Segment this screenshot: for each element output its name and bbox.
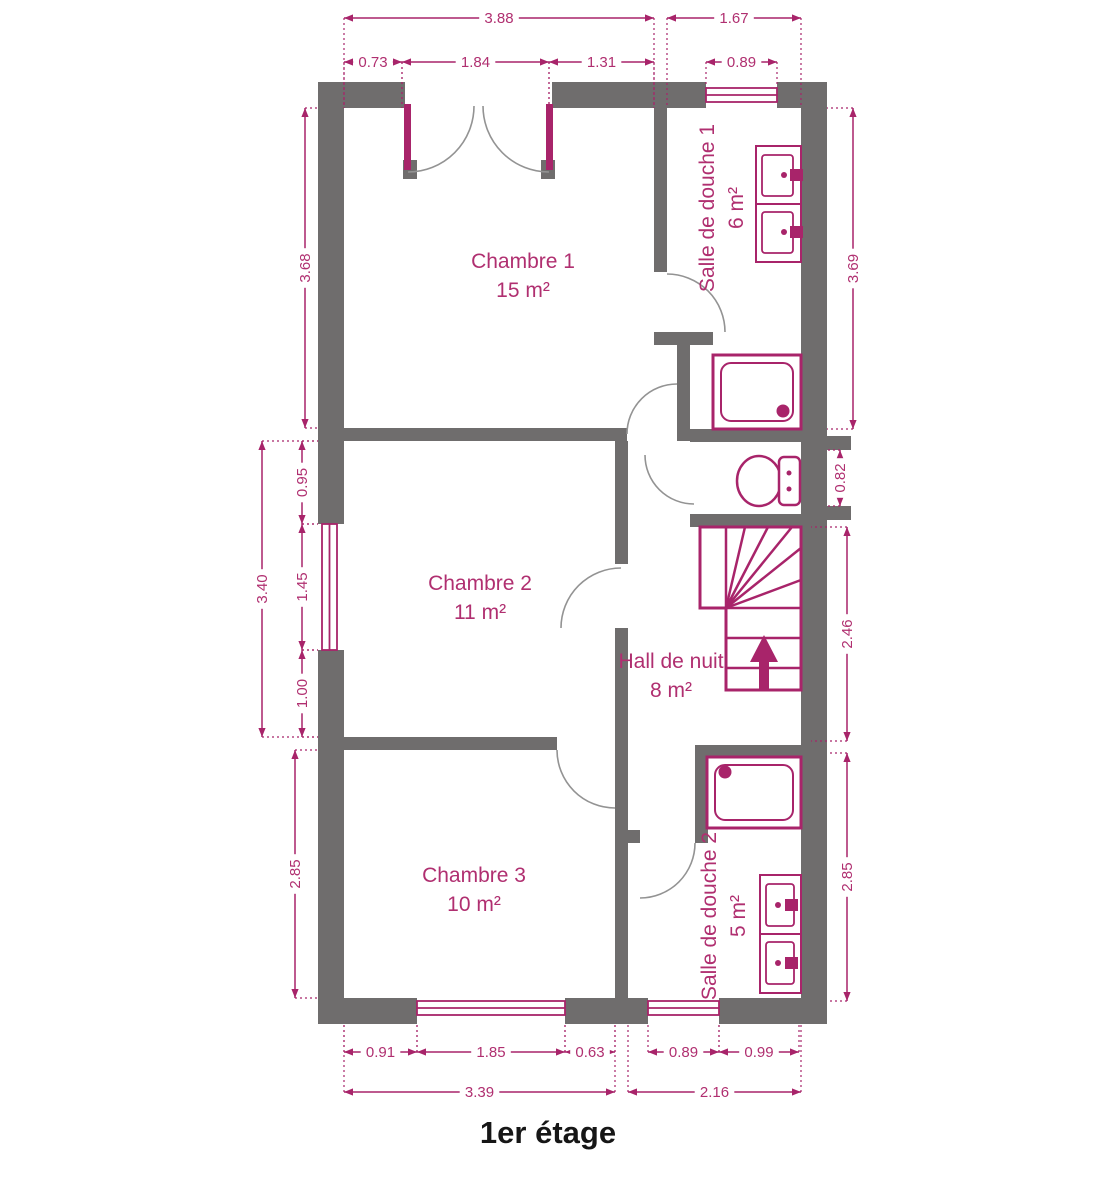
window-chambre2-icon xyxy=(322,524,337,650)
room-name: Salle de douche 1 xyxy=(696,124,719,292)
room-area: 11 m² xyxy=(454,601,506,624)
dimension-value: 0.89 xyxy=(669,1044,698,1061)
dimension-0.99: 0.99 xyxy=(719,1024,799,1061)
dimension-value: 1.85 xyxy=(476,1044,505,1061)
wall-sdd1-jog xyxy=(654,332,713,345)
wall-chambre2-east-upper xyxy=(615,441,628,564)
french-door-swing-left-icon xyxy=(408,106,474,172)
dimension-2.85: 2.85 xyxy=(827,753,856,1001)
toilet-icon xyxy=(737,456,800,506)
room-area: 5 m² xyxy=(727,895,750,937)
dimension-2.16: 2.16 xyxy=(628,1024,801,1101)
wall-chambre1-south xyxy=(344,428,627,441)
floor-plan-page: Chambre 115 m²Salle de douche 16 m²Chamb… xyxy=(0,0,1113,1200)
dimension-value: 2.46 xyxy=(839,619,856,648)
dimension-value: 0.63 xyxy=(575,1044,604,1061)
room-name: Hall de nuit xyxy=(618,650,723,673)
dimension-value: 1.67 xyxy=(719,10,748,27)
wall-sdd2-shower-north xyxy=(695,745,801,757)
dimension-0.91: 0.91 xyxy=(344,1024,417,1061)
wall-chambre1-east xyxy=(654,108,667,272)
french-door-swing-right-icon xyxy=(483,106,549,172)
wall-hall-west-stub xyxy=(677,345,690,441)
dimension-value: 2.16 xyxy=(700,1084,729,1101)
room-label-1: Chambre 115 m² xyxy=(471,250,575,302)
dimension-value: 2.85 xyxy=(287,859,304,888)
room-name: Salle de douche 2 xyxy=(698,832,721,1000)
dimension-value: 0.82 xyxy=(832,463,849,492)
dimension-value: 3.69 xyxy=(845,254,862,283)
dimension-3.68: 3.68 xyxy=(296,108,319,428)
dimension-2.85: 2.85 xyxy=(286,750,318,998)
wall-wc-south xyxy=(690,514,801,527)
room-label-4: Hall de nuit8 m² xyxy=(618,650,723,702)
dimension-value: 0.91 xyxy=(366,1044,395,1061)
dimension-value: 1.00 xyxy=(294,679,311,708)
door-swing-sdd2-icon xyxy=(640,843,695,898)
wall-chambre2-east-lower xyxy=(615,628,628,998)
dimension-value: 1.45 xyxy=(294,572,311,601)
wall-duct-pilaster-bottom xyxy=(827,506,851,520)
dimension-1.00: 1.00 xyxy=(293,650,318,737)
dimension-value: 0.95 xyxy=(294,468,311,497)
room-label-6: Salle de douche 25 m² xyxy=(698,832,750,1000)
dimension-value: 0.99 xyxy=(744,1044,773,1061)
dimension-value: 2.85 xyxy=(839,862,856,891)
room-name: Chambre 3 xyxy=(422,864,526,887)
door-swing-wc-icon xyxy=(645,455,694,504)
wall-chambre3-north xyxy=(344,737,557,750)
double-washbasin-1-icon xyxy=(756,146,803,262)
dimension-1.45: 1.45 xyxy=(293,524,318,650)
room-name: Chambre 1 xyxy=(471,250,575,273)
room-label-5: Chambre 310 m² xyxy=(422,864,526,916)
wall-top-right xyxy=(777,82,827,108)
shower-tray-1-icon xyxy=(713,355,801,429)
dimension-value: 3.68 xyxy=(297,253,314,282)
dimension-1.84: 1.84 xyxy=(402,53,549,108)
door-swing-chambre3-icon xyxy=(557,750,615,808)
dimension-0.89: 0.89 xyxy=(706,53,777,88)
dimension-value: 3.39 xyxy=(465,1084,494,1101)
window-sdd2-icon xyxy=(648,1001,719,1015)
room-area: 10 m² xyxy=(447,893,501,916)
dimension-0.89: 0.89 xyxy=(648,1024,719,1061)
window-chambre3-icon xyxy=(417,1001,565,1015)
room-label-2: Salle de douche 16 m² xyxy=(696,124,748,292)
dimension-value: 3.40 xyxy=(254,574,271,603)
dimension-1.85: 1.85 xyxy=(417,1024,565,1061)
wall-sdd2-door-stub xyxy=(628,830,640,843)
dimension-value: 0.89 xyxy=(727,54,756,71)
dimension-value: 3.88 xyxy=(484,10,513,27)
door-swing-chambre1-icon xyxy=(627,384,677,434)
window-sdd1-icon xyxy=(706,88,777,102)
dimension-0.63: 0.63 xyxy=(565,1024,615,1061)
dimension-value: 1.31 xyxy=(587,54,616,71)
room-area: 6 m² xyxy=(725,187,748,229)
doors xyxy=(404,104,725,898)
wall-duct-pilaster-top xyxy=(827,436,851,450)
dimension-3.39: 3.39 xyxy=(344,1024,615,1101)
wall-bottom-middle xyxy=(565,998,648,1024)
room-label-3: Chambre 211 m² xyxy=(428,572,532,624)
door-swing-chambre2-icon xyxy=(561,568,621,628)
dimension-3.69: 3.69 xyxy=(827,108,862,429)
dimension-value: 1.84 xyxy=(461,54,490,71)
staircase-up-arrow-icon xyxy=(750,635,778,690)
room-name: Chambre 2 xyxy=(428,572,532,595)
shower-tray-2-icon xyxy=(707,757,801,828)
wall-top-left xyxy=(318,82,405,108)
dimension-0.95: 0.95 xyxy=(293,441,318,524)
floor-plan: Chambre 115 m²Salle de douche 16 m²Chamb… xyxy=(0,0,1113,1200)
wall-bottom-right xyxy=(719,998,827,1024)
wall-right xyxy=(801,108,827,998)
wall-bottom-left xyxy=(318,998,417,1024)
wall-left-lower xyxy=(318,650,344,1024)
dimension-value: 0.73 xyxy=(358,54,387,71)
double-washbasin-2-icon xyxy=(760,875,801,993)
french-door-leaf-right xyxy=(546,104,553,170)
french-door-leaf-left xyxy=(404,104,411,170)
plan-title: 1er étage xyxy=(480,1115,616,1150)
dimension-0.82: 0.82 xyxy=(827,450,849,506)
wall-wc-north xyxy=(690,429,801,442)
room-area: 8 m² xyxy=(650,679,692,702)
wall-left-upper xyxy=(318,108,344,524)
wall-top-middle xyxy=(552,82,706,108)
room-area: 15 m² xyxy=(496,279,550,302)
